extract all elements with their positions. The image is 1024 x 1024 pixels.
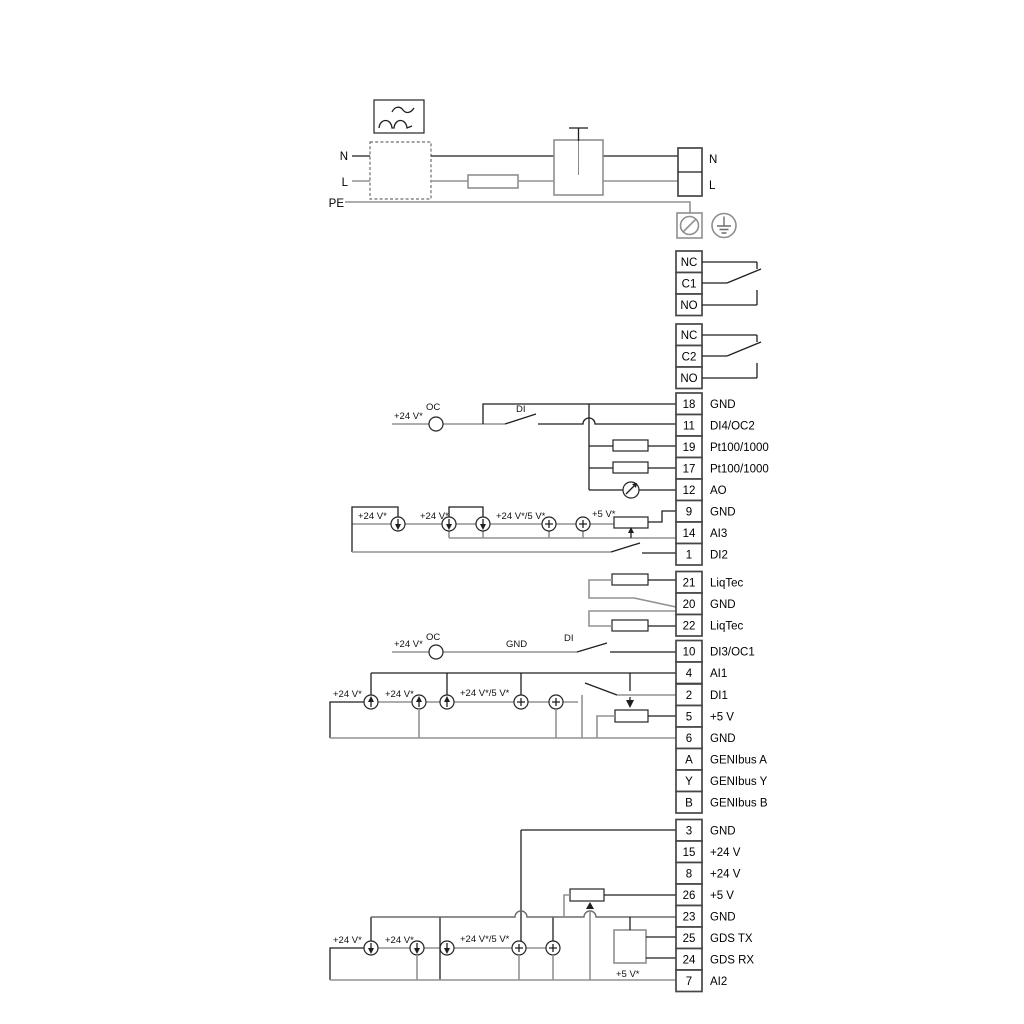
- relay-2: NC C2 NO: [676, 324, 761, 389]
- terminal-label: +5 V: [710, 890, 734, 902]
- terminal-label: GENIbus B: [710, 798, 768, 810]
- terminal-row: 25 GDS TX: [676, 927, 753, 949]
- terminal-row: 17 Pt100/1000: [676, 458, 769, 480]
- di-switch-blade: [505, 414, 536, 424]
- terminal-row: 22 LiqTec: [676, 615, 743, 637]
- terminal-number: 12: [683, 485, 696, 497]
- terminal-row: 2 DI1: [676, 684, 728, 706]
- terminal-row: 23 GND: [676, 906, 736, 928]
- label-neutral-out: N: [709, 154, 717, 166]
- terminal-row: 18 GND: [676, 393, 736, 415]
- current-source-down-icon: [410, 941, 424, 955]
- terminal-label: GND: [710, 826, 736, 838]
- terminal-label: AI2: [710, 976, 727, 988]
- terminal-label: AI1: [710, 668, 727, 680]
- terminal-row: A GENIbus A: [676, 749, 767, 771]
- terminal-number: 4: [686, 668, 693, 680]
- terminal-number: 23: [683, 912, 696, 924]
- terminal-number: 1: [686, 550, 692, 562]
- relay2-contact-blade: [727, 342, 761, 356]
- mains-symbol-box: [374, 100, 424, 133]
- terminal-label: DI4/OC2: [710, 421, 755, 433]
- voltage-source-icon: [512, 941, 526, 955]
- terminal-label: Pt100/1000: [710, 464, 769, 476]
- pt100-resistor-2: [613, 462, 648, 473]
- external-supply-loop: [330, 948, 364, 980]
- terminal-label: GDS TX: [710, 933, 753, 945]
- potentiometer: [570, 889, 604, 901]
- voltage-source-icon: [514, 695, 528, 709]
- label-di: DI: [564, 633, 574, 644]
- pot-left-wire: [564, 895, 570, 917]
- wire-gnd18: [483, 404, 676, 424]
- terminal-row: 5 +5 V: [676, 706, 734, 728]
- gds-sensor-box: [614, 930, 646, 963]
- terminal-row: 21 LiqTec: [676, 572, 743, 594]
- ai1-wiper-arrow: [626, 700, 634, 708]
- di-switch-blade: [577, 643, 607, 652]
- label-5v: +5 V*: [592, 509, 616, 520]
- terminal-number: 26: [683, 890, 696, 902]
- label-24v: +24 V*: [394, 639, 423, 650]
- terminal-label: LiqTec: [710, 621, 743, 633]
- label-oc: OC: [426, 402, 440, 413]
- label-24v: +24 V*: [394, 411, 423, 422]
- terminal-row: 7 AI2: [676, 970, 727, 992]
- label-neutral-in: N: [340, 151, 348, 163]
- filter-box: [370, 142, 431, 199]
- wire-di4: [538, 418, 676, 424]
- terminal-label: GND: [710, 399, 736, 411]
- wire-gnd23-bus: [371, 911, 676, 917]
- pot-left-wire: [597, 716, 615, 738]
- di1-switch-blade: [585, 683, 617, 695]
- terminal-row: 9 GND: [676, 501, 736, 523]
- di4-oc2-circuit: +24 V* OC DI: [392, 402, 676, 498]
- di2-switch-blade: [611, 543, 640, 552]
- relay1-no-label: NO: [680, 300, 697, 312]
- terminal-label: GENIbus Y: [710, 776, 768, 788]
- liqtec-circuit: [589, 574, 676, 631]
- terminal-label: GND: [710, 733, 736, 745]
- terminal-label: DI3/OC1: [710, 647, 755, 659]
- label-pe: PE: [329, 198, 345, 210]
- wire-gnd3: [521, 830, 676, 941]
- label-24v: +24 V*: [385, 935, 414, 946]
- label-24v: +24 V*: [333, 935, 362, 946]
- terminal-number: 22: [683, 621, 696, 633]
- current-source-down-icon: [476, 517, 490, 531]
- fuse: [468, 175, 518, 188]
- liqtec-sensor-2: [612, 620, 648, 631]
- supply-drops: [449, 531, 583, 538]
- label-gnd: GND: [506, 639, 527, 650]
- terminal-number: Y: [685, 776, 693, 788]
- terminal-row: 4 AI1: [676, 662, 727, 684]
- potentiometer: [614, 517, 648, 528]
- voltage-source-icon: [546, 941, 560, 955]
- relay1-c-label: C1: [682, 279, 697, 291]
- terminal-label: LiqTec: [710, 578, 743, 590]
- liqtec-sensor-1: [612, 574, 648, 585]
- terminal-label: DI2: [710, 550, 728, 562]
- relay1-nc-label: NC: [681, 257, 698, 269]
- terminal-row: 1 DI2: [676, 544, 728, 566]
- terminal-row: 20 GND: [676, 593, 736, 615]
- current-source-down-icon: [364, 941, 378, 955]
- terminal-label: DI1: [710, 690, 728, 702]
- terminal-number: 19: [683, 442, 696, 454]
- terminal-label: +24 V: [710, 847, 741, 859]
- terminal-row: 10 DI3/OC1: [676, 641, 755, 663]
- terminal-label: GND: [710, 912, 736, 924]
- terminal-label: AI3: [710, 528, 727, 540]
- terminal-column: 18 GND 11 DI4/OC2 19 Pt100/1000 17 Pt100…: [676, 393, 769, 992]
- label-24v: +24 V*: [333, 689, 362, 700]
- terminal-label: +5 V: [710, 712, 734, 724]
- label-24v: +24 V*: [385, 689, 414, 700]
- open-collector-icon: [429, 645, 443, 659]
- terminal-row: 12 AO: [676, 479, 727, 501]
- current-source-up-icon: [412, 695, 426, 709]
- terminal-number: 2: [686, 690, 692, 702]
- terminal-label: Pt100/1000: [710, 442, 769, 454]
- terminal-number: 14: [683, 528, 696, 540]
- terminal-number: 24: [683, 955, 696, 967]
- terminal-number: 18: [683, 399, 696, 411]
- terminal-number: 7: [686, 976, 692, 988]
- terminal-row: 3 GND: [676, 820, 736, 842]
- terminal-label: GDS RX: [710, 955, 754, 967]
- switch-actuator-icon: [569, 128, 588, 141]
- terminal-row: 14 AI3: [676, 522, 727, 544]
- label-di: DI: [516, 404, 526, 415]
- terminal-number: 20: [683, 599, 696, 611]
- terminal-label: GND: [710, 599, 736, 611]
- terminal-number: 17: [683, 464, 696, 476]
- terminal-number: 6: [686, 733, 692, 745]
- current-source-down-icon: [442, 517, 456, 531]
- terminal-number: 11: [683, 421, 695, 433]
- label-line-in: L: [342, 177, 349, 189]
- current-source-down-icon: [391, 517, 405, 531]
- terminal-row: 15 +24 V: [676, 841, 741, 863]
- terminal-number: 25: [683, 933, 696, 945]
- ai1-circuit: +24 V* +24 V* +24 V*/5 V*: [330, 673, 676, 738]
- current-source-up-icon: [440, 695, 454, 709]
- terminal-number: 5: [686, 712, 692, 724]
- label-24v: +24 V*: [358, 511, 387, 522]
- page: N L PE N L NC C1 NO NC: [0, 0, 1024, 1024]
- terminal-row: 26 +5 V: [676, 884, 734, 906]
- terminal-row: 11 DI4/OC2: [676, 415, 755, 437]
- terminal-number: B: [685, 798, 693, 810]
- terminal-row: 8 +24 V: [676, 863, 741, 885]
- pot-wiper-arrow: [586, 902, 594, 909]
- voltage-source-icon: [542, 517, 556, 531]
- label-oc: OC: [426, 632, 440, 643]
- terminal-number: 15: [683, 847, 696, 859]
- power-section: N L PE N L: [329, 100, 736, 238]
- supply-drops: [419, 709, 556, 738]
- relay2-c-label: C2: [682, 352, 697, 364]
- relay-1: NC C1 NO: [676, 251, 761, 316]
- gds-tx-rx-wires: [646, 937, 676, 958]
- voltage-source-icon: [549, 695, 563, 709]
- potentiometer: [615, 710, 648, 722]
- supply-drops: [417, 955, 553, 980]
- wiring-diagram: N L PE N L NC C1 NO NC: [0, 0, 1024, 1024]
- label-5v: +5 V*: [616, 969, 640, 980]
- terminal-row: 6 GND: [676, 727, 736, 749]
- relay1-wires: [702, 262, 757, 305]
- terminal-label: AO: [710, 485, 727, 497]
- terminal-number: 9: [686, 507, 692, 519]
- relay2-wires: [702, 335, 757, 378]
- terminal-number: 3: [686, 826, 692, 838]
- relay2-no-label: NO: [680, 373, 697, 385]
- label-24v-5v: +24 V*/5 V*: [496, 511, 546, 522]
- current-source-up-icon: [364, 695, 378, 709]
- label-line-out: L: [709, 180, 716, 192]
- terminal-row: B GENIbus B: [676, 792, 768, 814]
- open-collector-icon: [429, 417, 443, 431]
- terminal-number: A: [685, 755, 693, 767]
- terminal-number: 21: [683, 578, 696, 590]
- terminal-label: GENIbus A: [710, 755, 767, 767]
- terminal-label: GND: [710, 507, 736, 519]
- terminal-number: 8: [686, 869, 692, 881]
- ai3-circuit: +24 V* +24 V* +24 V*/5 V* +5 V*: [352, 507, 676, 553]
- terminal-label: +24 V: [710, 869, 741, 881]
- label-24v-5v: +24 V*/5 V*: [460, 688, 510, 699]
- relay1-contact-blade: [727, 269, 761, 283]
- ai2-circuit: +24 V* +24 V* +24 V*/5 V* +5 V*: [330, 830, 676, 980]
- pot-to-gnd9: [648, 511, 676, 522]
- current-source-down-icon: [440, 941, 454, 955]
- terminal-number: 10: [683, 647, 696, 659]
- di3-oc1-circuit: +24 V* OC GND DI: [392, 632, 676, 659]
- terminal-row: Y GENIbus Y: [676, 770, 768, 792]
- terminal-row: 24 GDS RX: [676, 949, 754, 971]
- relay2-nc-label: NC: [681, 330, 698, 342]
- label-24v-5v: +24 V*/5 V*: [460, 934, 510, 945]
- pt100-resistor-1: [613, 440, 648, 451]
- wire-pe: [345, 202, 690, 213]
- external-supply-loop: [330, 702, 364, 738]
- terminal-row: 19 Pt100/1000: [676, 436, 769, 458]
- voltage-source-icon: [576, 517, 590, 531]
